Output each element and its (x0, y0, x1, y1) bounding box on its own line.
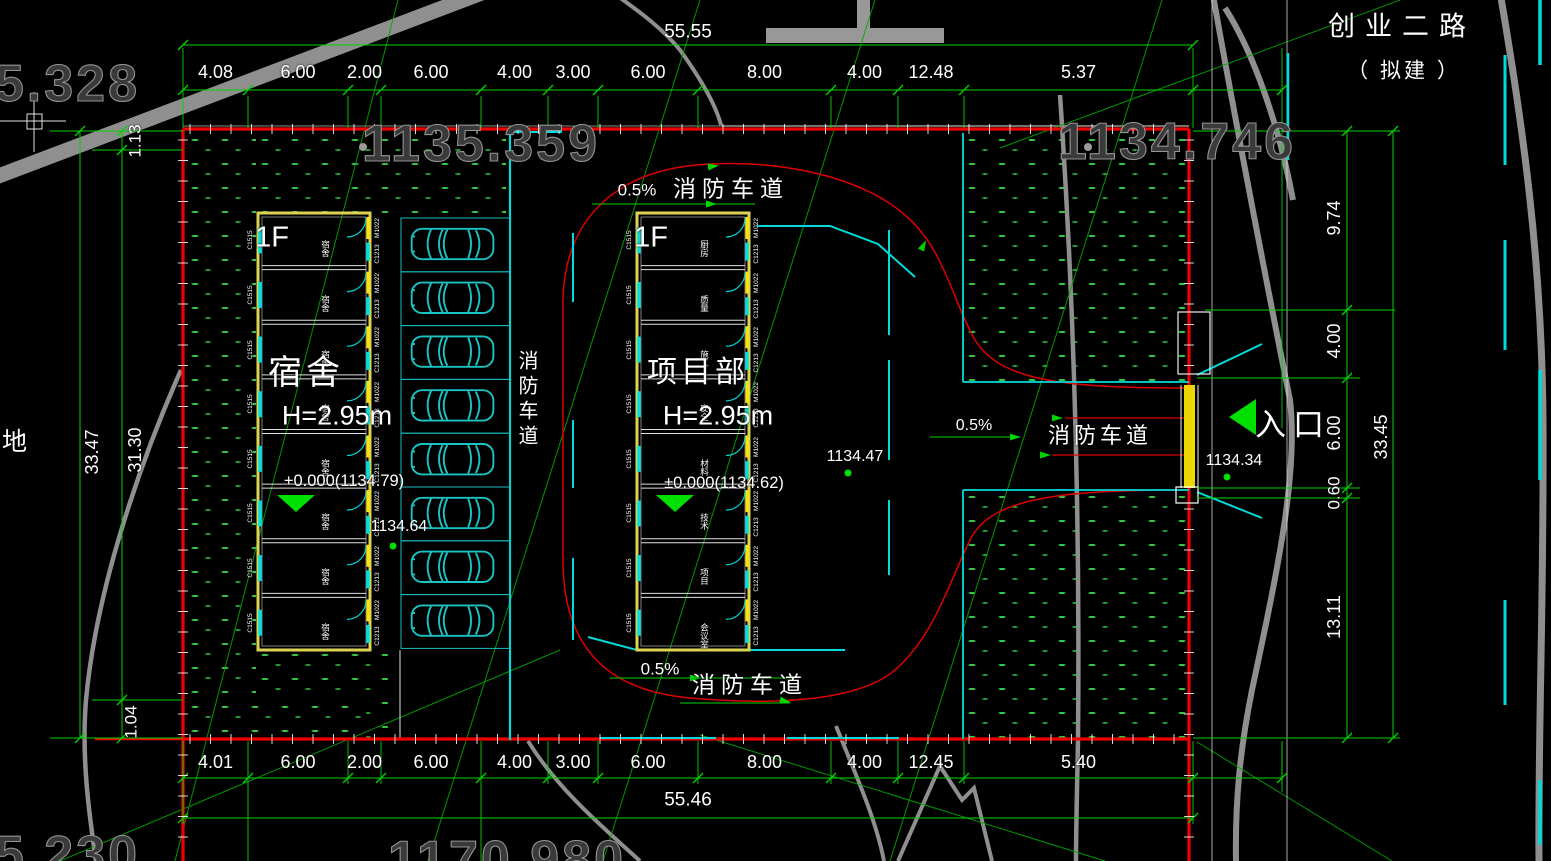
parking-stalls (401, 218, 510, 648)
buildings (258, 213, 749, 650)
parked-car-icon (412, 552, 494, 582)
entrance-gate (1176, 312, 1210, 503)
flow-arrow-icon (1010, 434, 1021, 441)
guard-box (1178, 312, 1210, 374)
flow-arrow-icon (1052, 415, 1063, 422)
parked-car-icon (412, 498, 494, 528)
flow-arrow-icon (779, 697, 791, 706)
parked-car-icon (412, 336, 494, 366)
markers (277, 143, 1256, 550)
parked-car-icon (412, 283, 494, 313)
flow-arrow-icon (706, 201, 717, 208)
spot-elevation-dot (1224, 474, 1231, 481)
level-marker-icon (656, 495, 694, 512)
entrance-arrow-icon (1229, 399, 1256, 435)
fire-lane-loop (563, 163, 1186, 701)
cad-viewport[interactable]: 宿舍C1515M1022C1213宿舍C1515M1022C1213宿舍C151… (0, 0, 1551, 861)
spot-elevation-dot (390, 543, 397, 550)
drawing-linework (0, 0, 1551, 861)
level-marker-icon (277, 495, 315, 512)
boundary-ticks (178, 124, 1194, 837)
parked-car-icon (412, 444, 494, 474)
spot-elevation-dot (845, 470, 852, 477)
survey-point-dot (1084, 143, 1092, 151)
parked-car-icon (412, 605, 494, 635)
flow-arrow-icon (1040, 452, 1051, 459)
parked-car-icon (412, 390, 494, 420)
parked-car-icon (412, 229, 494, 259)
survey-point-dot (359, 143, 367, 151)
flow-arrow-icon (690, 675, 701, 682)
